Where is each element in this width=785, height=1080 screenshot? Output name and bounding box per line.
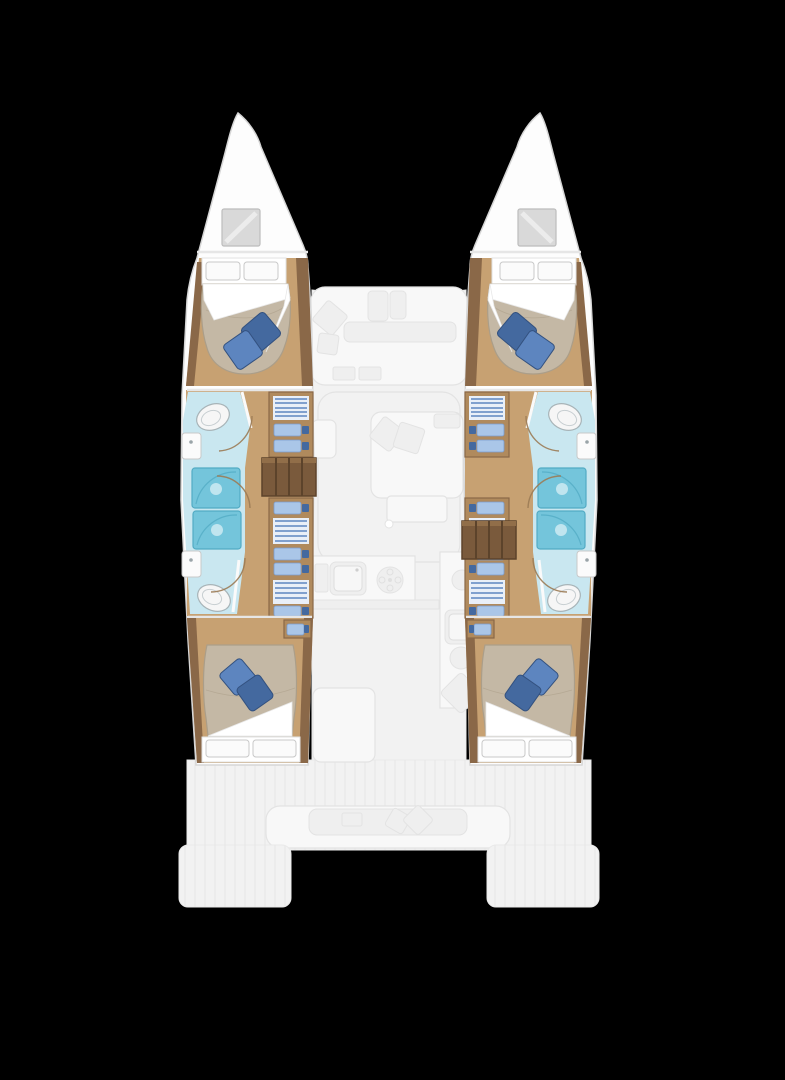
seat-cushion	[390, 291, 406, 319]
catamaran-floorplan-page: overhead-deck-plan	[0, 0, 785, 1080]
catamaran-deck-plan: overhead-deck-plan	[0, 0, 785, 1080]
transom-platform-starboard	[487, 845, 599, 907]
companionway-steps-port	[262, 458, 316, 496]
saloon-table	[387, 496, 447, 522]
foredeck-seating	[311, 287, 467, 385]
seat-back	[333, 367, 355, 380]
seat-cushion	[317, 333, 340, 356]
galley-sink	[330, 562, 366, 595]
sofa-back	[434, 414, 460, 428]
seat-bench	[344, 322, 456, 342]
seat-back	[359, 367, 381, 380]
galley-stove	[377, 567, 403, 593]
bench-cushion	[342, 813, 362, 826]
counter-edge	[313, 600, 439, 609]
transom-platform-port	[179, 845, 291, 907]
seat-cushion	[368, 291, 388, 321]
armchair	[312, 420, 336, 458]
mast-foot	[385, 520, 393, 528]
companionway-steps-starboard	[462, 521, 516, 559]
galley-module	[313, 688, 375, 762]
galley-appliance	[315, 564, 328, 592]
aft-cockpit	[266, 804, 510, 848]
